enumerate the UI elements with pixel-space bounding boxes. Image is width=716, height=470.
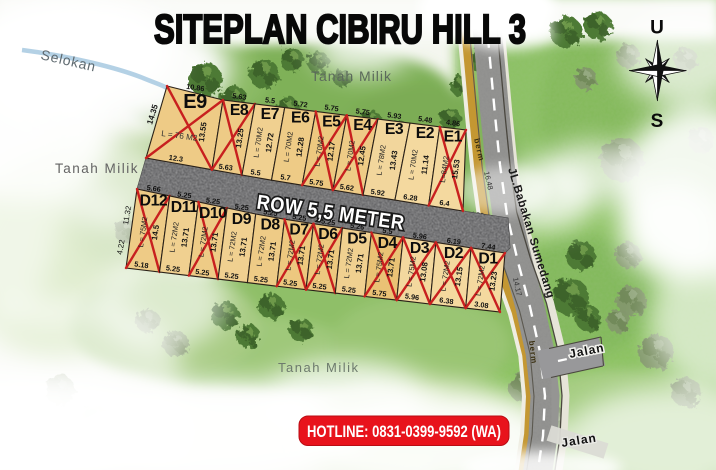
svg-text:S: S bbox=[651, 111, 664, 132]
svg-text:E6: E6 bbox=[291, 110, 310, 127]
svg-text:D10: D10 bbox=[199, 205, 227, 222]
svg-text:D12: D12 bbox=[140, 192, 168, 209]
svg-text:D9: D9 bbox=[232, 211, 252, 228]
svg-text:D8: D8 bbox=[260, 217, 280, 234]
svg-text:D5: D5 bbox=[347, 230, 367, 247]
svg-text:E9: E9 bbox=[183, 91, 207, 113]
svg-text:Tanah Milik: Tanah Milik bbox=[311, 68, 392, 84]
svg-text:5.5: 5.5 bbox=[250, 167, 261, 177]
svg-text:E1: E1 bbox=[444, 128, 463, 145]
svg-text:SITEPLAN CIBIRU HILL 3: SITEPLAN CIBIRU HILL 3 bbox=[154, 6, 526, 52]
svg-text:5.5: 5.5 bbox=[264, 95, 275, 105]
svg-text:Tanah Milik: Tanah Milik bbox=[55, 161, 139, 176]
svg-text:U: U bbox=[650, 18, 664, 39]
svg-text:D1: D1 bbox=[478, 250, 498, 267]
svg-text:HOTLINE: 0831-0399-9592 (WA): HOTLINE: 0831-0399-9592 (WA) bbox=[307, 423, 501, 441]
svg-text:D11: D11 bbox=[171, 199, 198, 216]
svg-text:E5: E5 bbox=[322, 113, 341, 130]
svg-text:E7: E7 bbox=[261, 106, 280, 123]
svg-text:E8: E8 bbox=[230, 102, 249, 119]
svg-text:D3: D3 bbox=[410, 240, 430, 257]
svg-text:D4: D4 bbox=[378, 235, 398, 252]
svg-text:E2: E2 bbox=[416, 125, 435, 142]
svg-text:5.7: 5.7 bbox=[280, 172, 291, 182]
svg-text:Tanah Milik: Tanah Milik bbox=[278, 360, 360, 375]
svg-text:E3: E3 bbox=[385, 121, 404, 138]
svg-text:D2: D2 bbox=[444, 245, 464, 262]
svg-text:D7: D7 bbox=[289, 221, 309, 238]
svg-text:D6: D6 bbox=[318, 226, 338, 243]
svg-text:E4: E4 bbox=[353, 117, 372, 134]
